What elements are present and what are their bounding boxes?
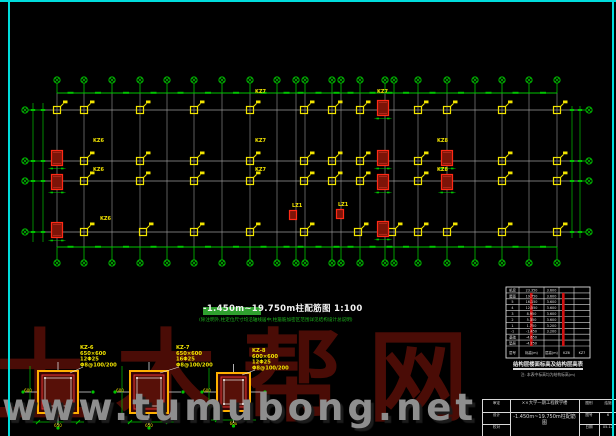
svg-text:3.600: 3.600	[547, 306, 557, 310]
svg-text:Φ8@100/200: Φ8@100/200	[252, 365, 289, 371]
svg-text:KZ7: KZ7	[255, 89, 267, 95]
svg-text:19.750: 19.750	[526, 294, 538, 298]
svg-text:1.750: 1.750	[527, 324, 537, 328]
sheet-border-left	[8, 0, 10, 436]
title-block-divider	[510, 412, 579, 413]
svg-text:KZ6: KZ6	[93, 167, 105, 173]
svg-text:-1: -1	[511, 330, 514, 334]
schedule-caption: 结构层楼面标高及结构层高表	[500, 360, 596, 368]
svg-text:屋面: 屋面	[509, 293, 516, 298]
svg-text:标高(m): 标高(m)	[525, 350, 538, 355]
svg-text:16.150: 16.150	[526, 300, 538, 304]
column-flag-labels: KZ6KZ6KZ6KZ7KZ7KZ7KZ7KZ8KZ8LZ1LZ1	[93, 89, 449, 222]
svg-text:12.550: 12.550	[526, 306, 538, 310]
svg-text:2: 2	[511, 318, 513, 322]
svg-text:KZ7: KZ7	[579, 351, 586, 355]
svg-text:3.200: 3.200	[547, 330, 557, 334]
svg-text:3.600: 3.600	[547, 288, 557, 292]
svg-text:KZ8: KZ8	[437, 167, 449, 173]
svg-text:机房: 机房	[509, 287, 516, 292]
svg-text:KZ7: KZ7	[377, 89, 389, 95]
title-block-field-label: 日期	[579, 426, 599, 430]
svg-text:LZ1: LZ1	[338, 202, 349, 208]
svg-text:5: 5	[511, 300, 513, 304]
svg-text:5.350: 5.350	[527, 318, 537, 322]
dimension-lines	[31, 103, 582, 242]
svg-text:-4.650: -4.650	[526, 336, 537, 340]
svg-text:KZ6: KZ6	[100, 216, 112, 222]
sheet-border-top	[0, 0, 616, 2]
svg-text:KZ7: KZ7	[255, 138, 267, 144]
title-block: ××大学一期工程教学楼 -1.450m~19.750m柱配筋图 审定设计校对图别…	[482, 399, 616, 436]
plan-title: -1.450m~19.750m柱配筋图 1:100	[203, 304, 363, 314]
sheet-border-right	[612, 0, 614, 436]
title-block-divider	[510, 400, 511, 436]
svg-text:-4.750: -4.750	[526, 342, 537, 346]
svg-text:Φ8@100/200: Φ8@100/200	[80, 362, 117, 368]
column-markers	[54, 101, 568, 236]
svg-text:KZ7: KZ7	[255, 167, 267, 173]
schedule-note: 注: 本表中标高均为结构标高(m)	[500, 372, 596, 378]
title-block-role-label: 设计	[483, 414, 510, 418]
svg-text:层号: 层号	[509, 350, 516, 355]
title-block-project: ××大学一期工程教学楼	[510, 402, 579, 407]
title-block-field-label: 图别	[579, 402, 599, 406]
cad-sheet: 土木帮网 KZ6KZ6KZ6KZ7KZ7KZ7KZ7KZ8KZ8LZ1LZ165…	[0, 0, 616, 436]
svg-text:3: 3	[511, 312, 513, 316]
svg-text:1: 1	[511, 324, 513, 328]
svg-text:23.350: 23.350	[526, 288, 538, 292]
svg-text:KZ6: KZ6	[93, 138, 105, 144]
floor-schedule-table: 机房23.3503.600屋面19.7503.600516.1503.60041…	[506, 287, 590, 358]
svg-text:8.950: 8.950	[527, 312, 537, 316]
svg-text:基础: 基础	[509, 335, 516, 340]
svg-text:-1.450: -1.450	[526, 330, 537, 334]
svg-text:3.600: 3.600	[547, 318, 557, 322]
svg-text:3.600: 3.600	[547, 294, 557, 298]
svg-text:4: 4	[511, 306, 513, 310]
svg-text:垫层: 垫层	[509, 341, 516, 346]
svg-text:Φ8@100/200: Φ8@100/200	[176, 362, 213, 368]
svg-text:LZ1: LZ1	[292, 203, 303, 209]
svg-text:层高(m): 层高(m)	[545, 350, 558, 355]
svg-text:3.600: 3.600	[547, 312, 557, 316]
title-block-field-label: 图号	[579, 414, 599, 418]
title-block-role-label: 校对	[483, 426, 510, 430]
title-block-drawing-title: -1.450m~19.750m柱配筋图	[511, 415, 578, 426]
svg-text:KZ6: KZ6	[563, 351, 570, 355]
plan-title-note: (除注明外,柱定位尺寸均沿轴线居中;柱箍筋加密区范围详见结构设计总说明)	[199, 317, 353, 323]
title-block-role-label: 审定	[483, 402, 510, 406]
schedule-caption-underline	[513, 368, 583, 370]
svg-text:3.200: 3.200	[547, 324, 557, 328]
svg-text:3.600: 3.600	[547, 300, 557, 304]
svg-text:KZ8: KZ8	[437, 138, 449, 144]
watermark-url: www.tumubong.net	[2, 389, 477, 426]
